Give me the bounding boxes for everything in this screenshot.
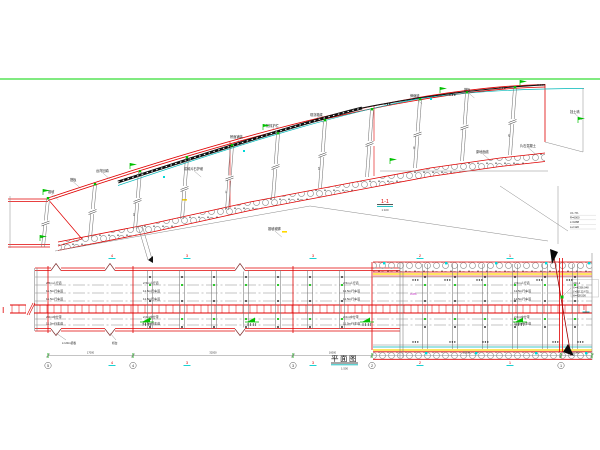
cyan-square <box>535 352 537 354</box>
dot-cluster <box>537 84 538 85</box>
elevation-label: 台背回填 <box>96 168 110 173</box>
pile-dim-label: 20 <box>507 134 511 137</box>
line-mark <box>110 333 116 340</box>
elevation-label: 片石混凝土 <box>520 143 537 148</box>
elevation-label: 锥坡 <box>48 189 55 194</box>
elevation-label: 搭板 <box>464 87 471 92</box>
rect-mark <box>309 276 311 278</box>
note-line: Y=95123.675 <box>573 290 589 294</box>
cyan-square <box>545 262 547 264</box>
pier-number: 4 <box>132 364 134 368</box>
yellow-tick-2 <box>282 231 287 233</box>
elevation-label: 伸缩缝 <box>410 93 420 98</box>
dim-text: 32000 <box>209 351 217 355</box>
elevation-annotation: 搭板 <box>70 177 80 188</box>
rect-mark <box>514 86 516 88</box>
rect-mark <box>484 276 486 278</box>
dot-cluster <box>487 341 488 342</box>
plan-pile <box>180 270 185 329</box>
elevation-label: 原地面线 <box>476 149 490 154</box>
rect-mark <box>454 318 456 320</box>
rect-mark <box>310 365 317 366</box>
cyan-square <box>445 262 447 264</box>
curve-note-line: R=6000 <box>570 216 580 220</box>
section-marker-right: Ⅰ <box>583 305 585 312</box>
elevation-annotation: 片石混凝土 <box>520 143 537 154</box>
rect-mark <box>424 300 426 302</box>
rect-mark <box>574 300 576 302</box>
rect-mark <box>149 276 151 278</box>
rect-mark <box>213 300 215 302</box>
section-marker-left: Ⅰ <box>2 306 4 315</box>
rect-mark <box>184 258 191 259</box>
dim-text: 6300 <box>574 351 580 355</box>
dim-text: 37800 <box>463 351 471 355</box>
dot-cluster <box>566 279 567 280</box>
dot-cluster <box>485 341 486 342</box>
dot-cluster <box>454 341 455 342</box>
dot-cluster <box>476 279 477 280</box>
elevation-pile: 18 <box>317 119 328 188</box>
joint-lines <box>400 262 403 358</box>
dot-cluster <box>452 341 453 342</box>
cyan-square <box>495 262 497 264</box>
dot-cluster <box>481 279 482 280</box>
dot-cluster <box>552 341 553 342</box>
rect-mark <box>484 318 486 320</box>
polygon-mark <box>247 318 255 323</box>
rect-mark <box>514 276 516 278</box>
plan-row-label: 2.5m人行道 <box>514 280 530 285</box>
yellow-tick-1 <box>182 199 187 201</box>
dot-cluster <box>557 341 558 342</box>
plan-row-label: 2.0m中分带 <box>143 314 159 319</box>
dim-text: 17000 <box>87 351 95 355</box>
dim-text: 16000 <box>329 351 337 355</box>
rect-mark <box>419 98 421 100</box>
cad-canvas: 1-1 1:100 <box>0 0 600 450</box>
rect-mark <box>514 326 516 328</box>
line-mark <box>103 173 110 179</box>
pile-dim-label: 18 <box>317 167 321 170</box>
dot-cluster <box>582 341 583 342</box>
dot-cluster <box>542 84 543 85</box>
rect-mark <box>507 258 514 259</box>
rect-mark <box>213 326 215 328</box>
rect-mark <box>544 284 546 286</box>
plan-row-label: 11.5m行车道 <box>514 296 531 301</box>
dot-cluster <box>415 341 416 342</box>
rect-mark <box>309 284 311 286</box>
plan-pile <box>212 270 217 329</box>
plan-row-label: 11.5m行车道 <box>343 296 360 301</box>
span-label-bottom: 3 <box>186 360 189 365</box>
rect-mark <box>544 276 546 278</box>
rect-mark <box>181 318 183 320</box>
pile-dim-label: 19 <box>412 146 416 149</box>
span-label-top: 3 <box>312 253 315 258</box>
elevation-pile: 20 <box>507 86 518 155</box>
abutment-label: 桥台 <box>112 341 118 345</box>
rect-mark <box>309 326 311 328</box>
elevation-label: 浆砌片石护坡 <box>184 166 204 171</box>
rect-mark <box>484 284 486 286</box>
rect-mark <box>277 284 279 286</box>
rect-mark <box>507 365 514 366</box>
elevation-flag-icon <box>440 87 447 93</box>
rect-mark <box>574 276 576 278</box>
pile-dim-label: 17 <box>224 190 228 193</box>
section-label: 1-1 <box>381 199 389 205</box>
abutment-label: L=20m搭板 <box>62 341 76 345</box>
elevation-label: 桥面铺装 <box>230 134 244 139</box>
pile-dim-label: 16 <box>132 213 136 216</box>
elevation-label: 搭板 <box>70 177 77 182</box>
rect-mark <box>424 284 426 286</box>
plan-row-label: 11.5m行车道 <box>143 296 160 301</box>
cyan-tick <box>243 150 245 152</box>
dot-cluster <box>449 341 450 342</box>
rect-mark <box>277 318 279 320</box>
elevation-label: 现浇箱梁 <box>310 112 324 117</box>
rect-mark <box>245 284 247 286</box>
dot-cluster <box>499 87 500 88</box>
rect-mark <box>574 326 576 328</box>
dot-cluster <box>577 341 578 342</box>
polygon-mark <box>130 163 137 166</box>
elevation-pile <box>88 183 98 238</box>
line-mark <box>194 171 201 177</box>
cyan-square <box>588 262 590 264</box>
rect-mark <box>139 170 141 172</box>
rect-mark <box>181 300 183 302</box>
rect-mark <box>213 318 215 320</box>
rect-mark <box>341 326 343 328</box>
elevation-annotation: 锥坡坡脚 <box>268 226 282 237</box>
elevation-pile: 19 <box>412 98 423 168</box>
elevation-pile <box>460 91 470 161</box>
span-label-bottom: 3 <box>312 360 315 365</box>
rect-mark <box>324 119 326 121</box>
plan-row-label: 11.5m行车道 <box>514 288 531 293</box>
plan-row-label: 11.5m行车道 <box>343 288 360 293</box>
note-target-marker <box>561 296 564 299</box>
elevation-pile <box>180 156 190 219</box>
pier-number: 1 <box>560 364 562 368</box>
rect-mark <box>454 300 456 302</box>
plan-pile <box>276 270 281 329</box>
elevation-flag-icon <box>578 117 585 123</box>
curve-note-line: Ls=120 <box>570 225 579 229</box>
dot-cluster <box>580 341 581 342</box>
span-label-top: 3 <box>186 253 189 258</box>
plan-pile <box>308 270 313 329</box>
dot-cluster <box>555 341 556 342</box>
dot-cluster <box>539 279 540 280</box>
rect-mark <box>245 276 247 278</box>
rect-mark <box>213 276 215 278</box>
rect-mark <box>277 276 279 278</box>
rect-mark <box>231 144 233 146</box>
rect-mark <box>181 326 183 328</box>
dot-cluster <box>412 279 413 280</box>
elevation-pile: 15 <box>40 197 51 247</box>
polygon-mark <box>362 318 370 323</box>
rect-mark <box>544 300 546 302</box>
rect-mark <box>184 365 191 366</box>
dot-cluster <box>479 279 480 280</box>
lane-lines <box>35 277 592 345</box>
elevation-pile <box>271 132 281 199</box>
rect-mark <box>544 326 546 328</box>
line-mark <box>73 182 80 188</box>
rect-mark <box>181 284 183 286</box>
plan-row-label: 2.0m中分带 <box>343 314 359 319</box>
plan-row-label: 2.0m中分带 <box>514 314 530 319</box>
cyan-tick <box>430 98 432 100</box>
drawing-sheet: 1-1 1:100 <box>0 0 600 450</box>
dot-cluster <box>454 94 455 95</box>
elevation-label: 锥坡坡脚 <box>268 226 281 231</box>
dot-cluster <box>387 103 388 104</box>
plan-row-label: 2.0m中分带 <box>46 314 62 319</box>
rect-mark <box>105 328 115 333</box>
dot-cluster <box>417 341 418 342</box>
rect-mark <box>245 300 247 302</box>
rect-mark <box>235 328 245 333</box>
dot-cluster <box>502 87 503 88</box>
rect-mark <box>417 365 424 366</box>
rubble-bottom-edge <box>58 162 545 251</box>
rect-mark <box>484 300 486 302</box>
span-label-bottom: 4 <box>111 360 114 365</box>
dot-cluster <box>452 94 453 95</box>
rect-mark <box>309 318 311 320</box>
line-mark <box>483 154 490 160</box>
polygon-mark <box>390 158 397 161</box>
line-mark <box>275 231 282 237</box>
plan-pile <box>244 270 249 329</box>
span-label-bottom: 1 <box>509 360 512 365</box>
section-label-group: 1-1 1:100 <box>377 199 393 212</box>
median-grade-label: i=2% <box>410 292 417 296</box>
pier-number: 3 <box>292 364 294 368</box>
span-label-top: 4 <box>111 253 114 258</box>
rect-mark <box>277 326 279 328</box>
curve-note-line: i=1.7% <box>570 211 579 215</box>
span-label-top: 2 <box>419 253 422 258</box>
pier-number: 2 <box>371 364 373 368</box>
line-mark <box>529 148 536 154</box>
rect-mark <box>245 326 247 328</box>
rect-mark <box>109 258 116 259</box>
rect-mark <box>213 284 215 286</box>
plan-row-label: 11.5m行车道 <box>514 321 531 326</box>
polygon-mark <box>520 80 527 83</box>
rect-mark <box>310 258 317 259</box>
dot-cluster <box>447 279 448 280</box>
pier-number: 5 <box>47 364 49 368</box>
dot-cluster <box>569 279 570 280</box>
dot-cluster <box>449 279 450 280</box>
rect-mark <box>245 318 247 320</box>
rect-mark <box>309 300 311 302</box>
cyan-square <box>383 262 385 264</box>
plan-row-label: 11.5m行车道 <box>46 321 63 326</box>
rect-mark <box>51 328 61 333</box>
elevation-flag-icon <box>130 163 137 169</box>
dot-cluster <box>540 84 541 85</box>
cyan-square <box>475 352 477 354</box>
rect-mark <box>341 276 343 278</box>
rect-mark <box>94 183 96 185</box>
rect-mark <box>484 326 486 328</box>
rect-mark <box>186 156 188 158</box>
rect-mark <box>371 108 373 110</box>
span-label-bottom: 2 <box>419 360 422 365</box>
dot-cluster <box>384 103 385 104</box>
band-break-peak <box>105 264 115 336</box>
plan-left-band-cap <box>35 268 38 331</box>
plan-row-label: 2.5m人行道 <box>343 280 359 285</box>
plan-row-label: 2.5m人行道 <box>143 280 159 285</box>
rect-mark <box>454 284 456 286</box>
rect-mark <box>424 318 426 320</box>
elevation-label: 挡土墙 <box>570 109 580 114</box>
note-line: X=40356.048 <box>573 285 589 289</box>
rect-mark <box>181 276 183 278</box>
dot-cluster <box>444 279 445 280</box>
section-scale: 1:100 <box>382 208 389 212</box>
elevation-view <box>8 84 584 263</box>
note-line: H=428.500 <box>573 294 586 298</box>
elevation-annotation: 原地面线 <box>476 149 490 160</box>
polygon-mark <box>440 87 447 90</box>
span-label-top: 1 <box>509 253 512 258</box>
dot-cluster <box>417 279 418 280</box>
rect-mark <box>574 318 576 320</box>
dot-cluster <box>536 279 537 280</box>
dot-cluster <box>482 341 483 342</box>
curve-note-line: L=1088 <box>570 220 580 224</box>
dot-cluster <box>571 279 572 280</box>
rect-mark <box>424 326 426 328</box>
rect-mark <box>454 326 456 328</box>
line-mark <box>56 333 66 340</box>
rect-mark <box>149 326 151 328</box>
elevation-pile: 17 <box>224 144 235 210</box>
plan-row-label: 11.5m行车道 <box>143 288 160 293</box>
rect-mark <box>424 276 426 278</box>
rect-mark <box>277 300 279 302</box>
rect-mark <box>417 258 424 259</box>
cyan-square <box>585 352 587 354</box>
dot-cluster <box>504 87 505 88</box>
elevation-annotation: 台背回填 <box>96 168 110 179</box>
cyan-tick <box>163 176 165 178</box>
elevation-pile <box>365 108 375 177</box>
dot-cluster <box>541 279 542 280</box>
deck-surface-lines <box>48 84 545 208</box>
dot-cluster <box>449 94 450 95</box>
dot-cluster <box>415 279 416 280</box>
plan-row-label: 11.5m行车道 <box>46 288 63 293</box>
dot-cluster <box>412 341 413 342</box>
plan-row-label: 2.5m人行道 <box>46 280 62 285</box>
plan-title-scale: 1:500 <box>341 367 348 371</box>
plan-row-label: 11.5m行车道 <box>143 321 160 326</box>
rect-mark <box>454 276 456 278</box>
rect-mark <box>109 365 116 366</box>
elevation-flag-icon <box>390 158 397 164</box>
cyan-square <box>425 352 427 354</box>
plan-row-label: 11.5m行车道 <box>46 296 63 301</box>
rect-mark <box>47 197 49 199</box>
dot-cluster <box>389 103 390 104</box>
plan-row-label: 11.5m行车道 <box>343 321 360 326</box>
tail-arrowhead <box>148 256 153 263</box>
rect-mark <box>544 318 546 320</box>
